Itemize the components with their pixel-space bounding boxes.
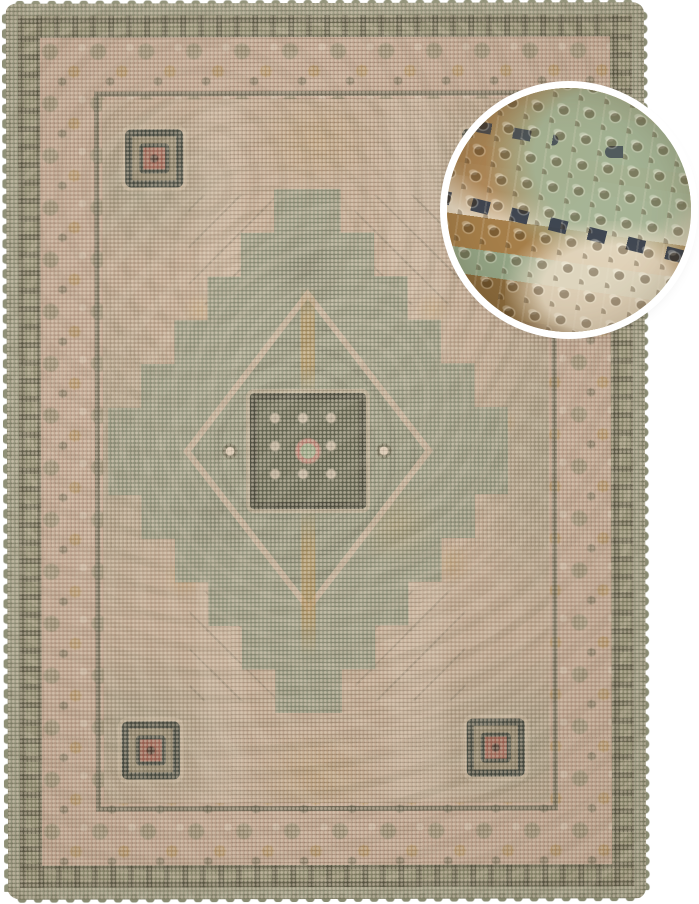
rug-left-selvedge-loops xyxy=(2,12,16,892)
inset-vignette xyxy=(447,88,691,332)
center-rosette xyxy=(294,437,322,465)
corner-medallion-bottom-left xyxy=(122,721,180,779)
corner-medallion-center xyxy=(139,143,169,173)
rug-bottom-selvedge-loops xyxy=(14,891,640,903)
corner-medallion-bottom-right xyxy=(467,718,525,776)
center-medallion-panel xyxy=(250,393,366,509)
side-rosette-right xyxy=(375,442,393,460)
medallion-pendant-bottom xyxy=(301,507,315,657)
corner-medallion-top-left xyxy=(125,129,183,187)
rug-top-selvedge-loops xyxy=(12,0,638,11)
zoom-inset xyxy=(447,88,691,332)
side-rosette-left xyxy=(221,442,239,460)
corner-medallion-center xyxy=(136,735,166,765)
medallion-pendant-top xyxy=(301,287,315,395)
product-photo-canvas xyxy=(0,0,699,904)
corner-medallion-center xyxy=(481,733,511,763)
